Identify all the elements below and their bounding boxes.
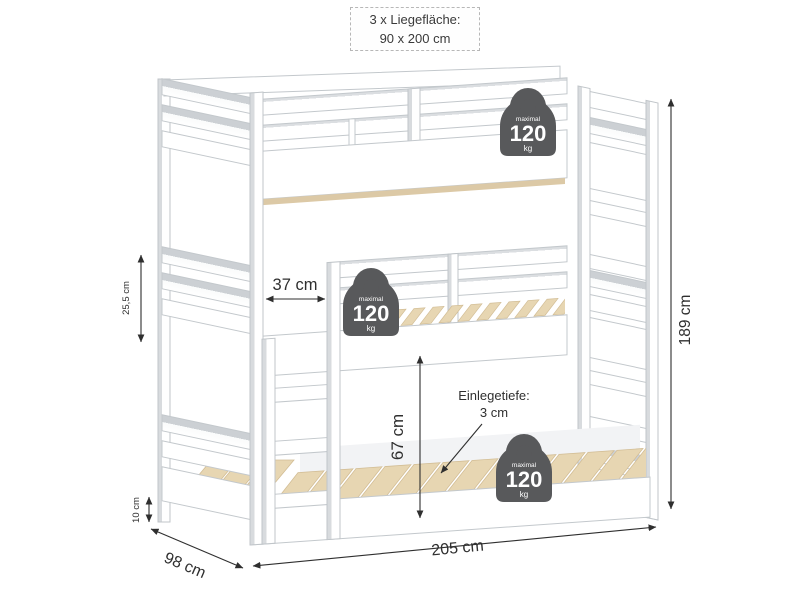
bed-illustration: maximal 120 kg maximal 120 kg maximal 12… [0, 0, 800, 600]
badge-value: 120 [510, 121, 547, 146]
product-dimension-diagram: maximal 120 kg maximal 120 kg maximal 12… [0, 0, 800, 600]
badge-unit: kg [524, 144, 532, 153]
front-left-post [250, 92, 263, 545]
dim-entry-gap-label: 37 cm [273, 276, 318, 294]
sleeping-surface-line1: 3 x Liegefläche: [351, 10, 479, 29]
dim-guard-rail-height-label: 25,5 cm [121, 281, 132, 315]
front-ladder-stringer [327, 262, 340, 540]
badge-value: 120 [506, 467, 543, 492]
dim-bed-length-label: 205 cm [431, 538, 485, 560]
bed-left-end [162, 79, 262, 522]
max-load-badge-top: maximal 120 kg [500, 94, 556, 157]
insert-depth-value: 3 cm [480, 405, 508, 420]
dim-bed-height-label: 189 cm [677, 295, 694, 346]
sleeping-surface-line2: 90 x 200 cm [351, 29, 479, 48]
badge-unit: kg [367, 324, 375, 333]
right-end-post [646, 100, 658, 520]
insert-depth-label: Einlegetiefe: [458, 388, 530, 403]
dim-bed-depth-label: 98 cm [161, 550, 208, 583]
badge-unit: kg [520, 490, 528, 499]
sleeping-surface-info-box: 3 x Liegefläche: 90 x 200 cm [350, 7, 480, 51]
max-load-badge-middle: maximal 120 kg [343, 274, 399, 337]
dim-floor-clearance-label: 10 cm [131, 497, 142, 523]
dim-under-bunk-height-label: 67 cm [388, 414, 407, 460]
front-ladder-stringer [262, 338, 275, 544]
badge-value: 120 [353, 301, 390, 326]
